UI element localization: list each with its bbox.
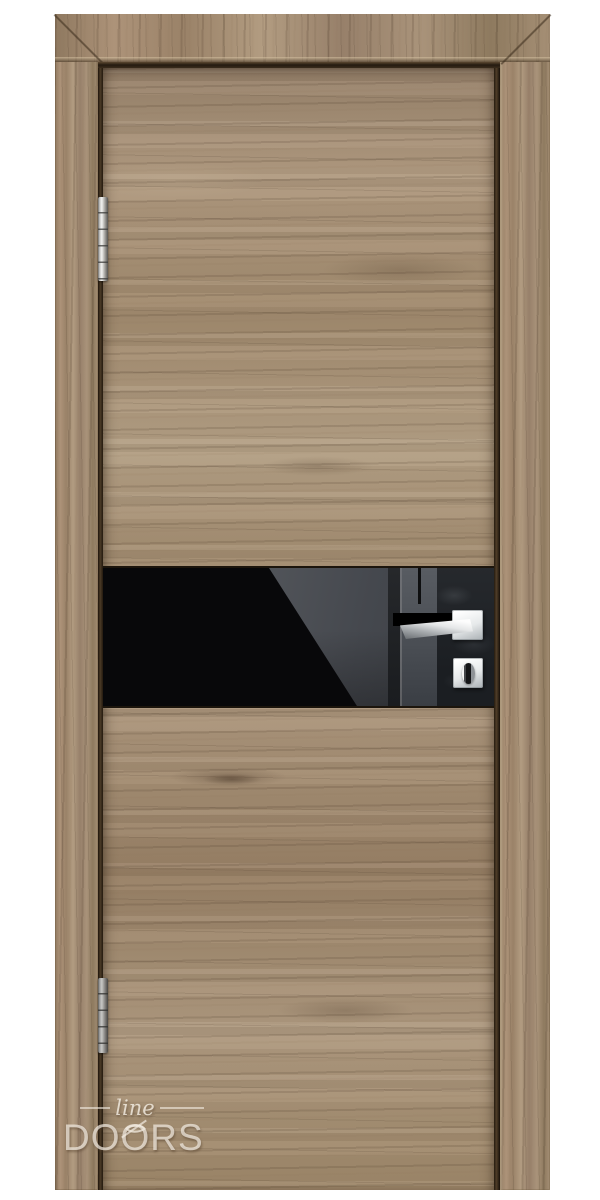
- watermark-letter-o1: O: [91, 1119, 121, 1157]
- watermark-letter-o2: O: [121, 1119, 151, 1157]
- hinge-top: [98, 197, 108, 281]
- brand-watermark: line D O O RS: [57, 1098, 227, 1157]
- reflection-window-frame-bar: [388, 568, 400, 706]
- watermark-letter-d: D: [63, 1119, 91, 1157]
- watermark-line-row: line: [57, 1098, 227, 1118]
- watermark-script-text: line: [115, 1098, 154, 1118]
- door-frame-header: [55, 14, 550, 62]
- logo-dash-right: [160, 1107, 204, 1109]
- product-photo: line D O O RS: [0, 0, 600, 1200]
- door-frame-left-jamb: [55, 14, 98, 1190]
- door-photo: line D O O RS: [55, 14, 550, 1190]
- door-gap-right: [494, 62, 500, 1190]
- thumbturn-icon: [462, 663, 475, 684]
- hinge-bottom: [98, 978, 108, 1053]
- glass-insert: [103, 566, 494, 708]
- door-frame-right-jamb: [500, 14, 550, 1190]
- door-leaf: [103, 68, 494, 1190]
- watermark-letters-rs: RS: [150, 1119, 203, 1157]
- logo-dash-left: [80, 1107, 110, 1109]
- reflection-cord: [418, 568, 421, 604]
- lock-rosette: [453, 658, 483, 688]
- watermark-doors-text: D O O RS: [57, 1119, 227, 1157]
